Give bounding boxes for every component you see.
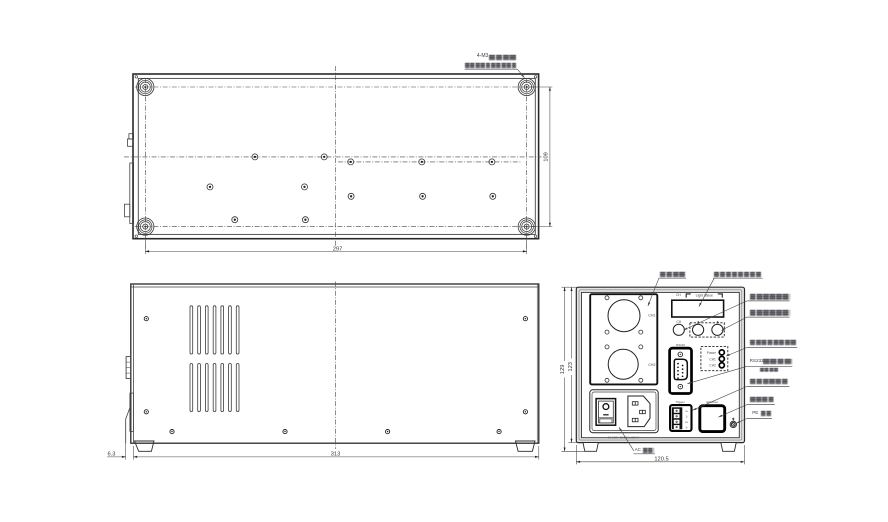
svg-text:1+: 1+ (685, 409, 688, 413)
svg-text:129: 129 (560, 365, 566, 375)
svg-text:6.3: 6.3 (108, 451, 116, 457)
svg-text:RS232: RS232 (676, 343, 685, 347)
svg-text:CH2: CH2 (648, 363, 655, 367)
svg-text:CH1: CH1 (648, 314, 655, 318)
svg-text:313: 313 (331, 452, 341, 458)
svg-text:2-: 2- (686, 425, 688, 429)
svg-text:2+: 2+ (685, 420, 688, 424)
svg-text:120.5: 120.5 (654, 457, 668, 463)
svg-text:123: 123 (568, 362, 574, 372)
svg-text:90-240V~50/60Hz 800VA: 90-240V~50/60Hz 800VA (608, 436, 640, 440)
svg-text:CH: CH (676, 293, 681, 297)
svg-text:109: 109 (544, 152, 550, 162)
svg-text:297: 297 (333, 246, 343, 252)
svg-text:CH: CH (676, 320, 681, 324)
svg-text:CH1: CH1 (709, 357, 716, 361)
svg-text:CH2: CH2 (709, 364, 716, 368)
svg-text:Trigger: Trigger (675, 400, 684, 404)
svg-text:1-: 1- (686, 414, 688, 418)
svg-text:Power: Power (707, 351, 717, 355)
